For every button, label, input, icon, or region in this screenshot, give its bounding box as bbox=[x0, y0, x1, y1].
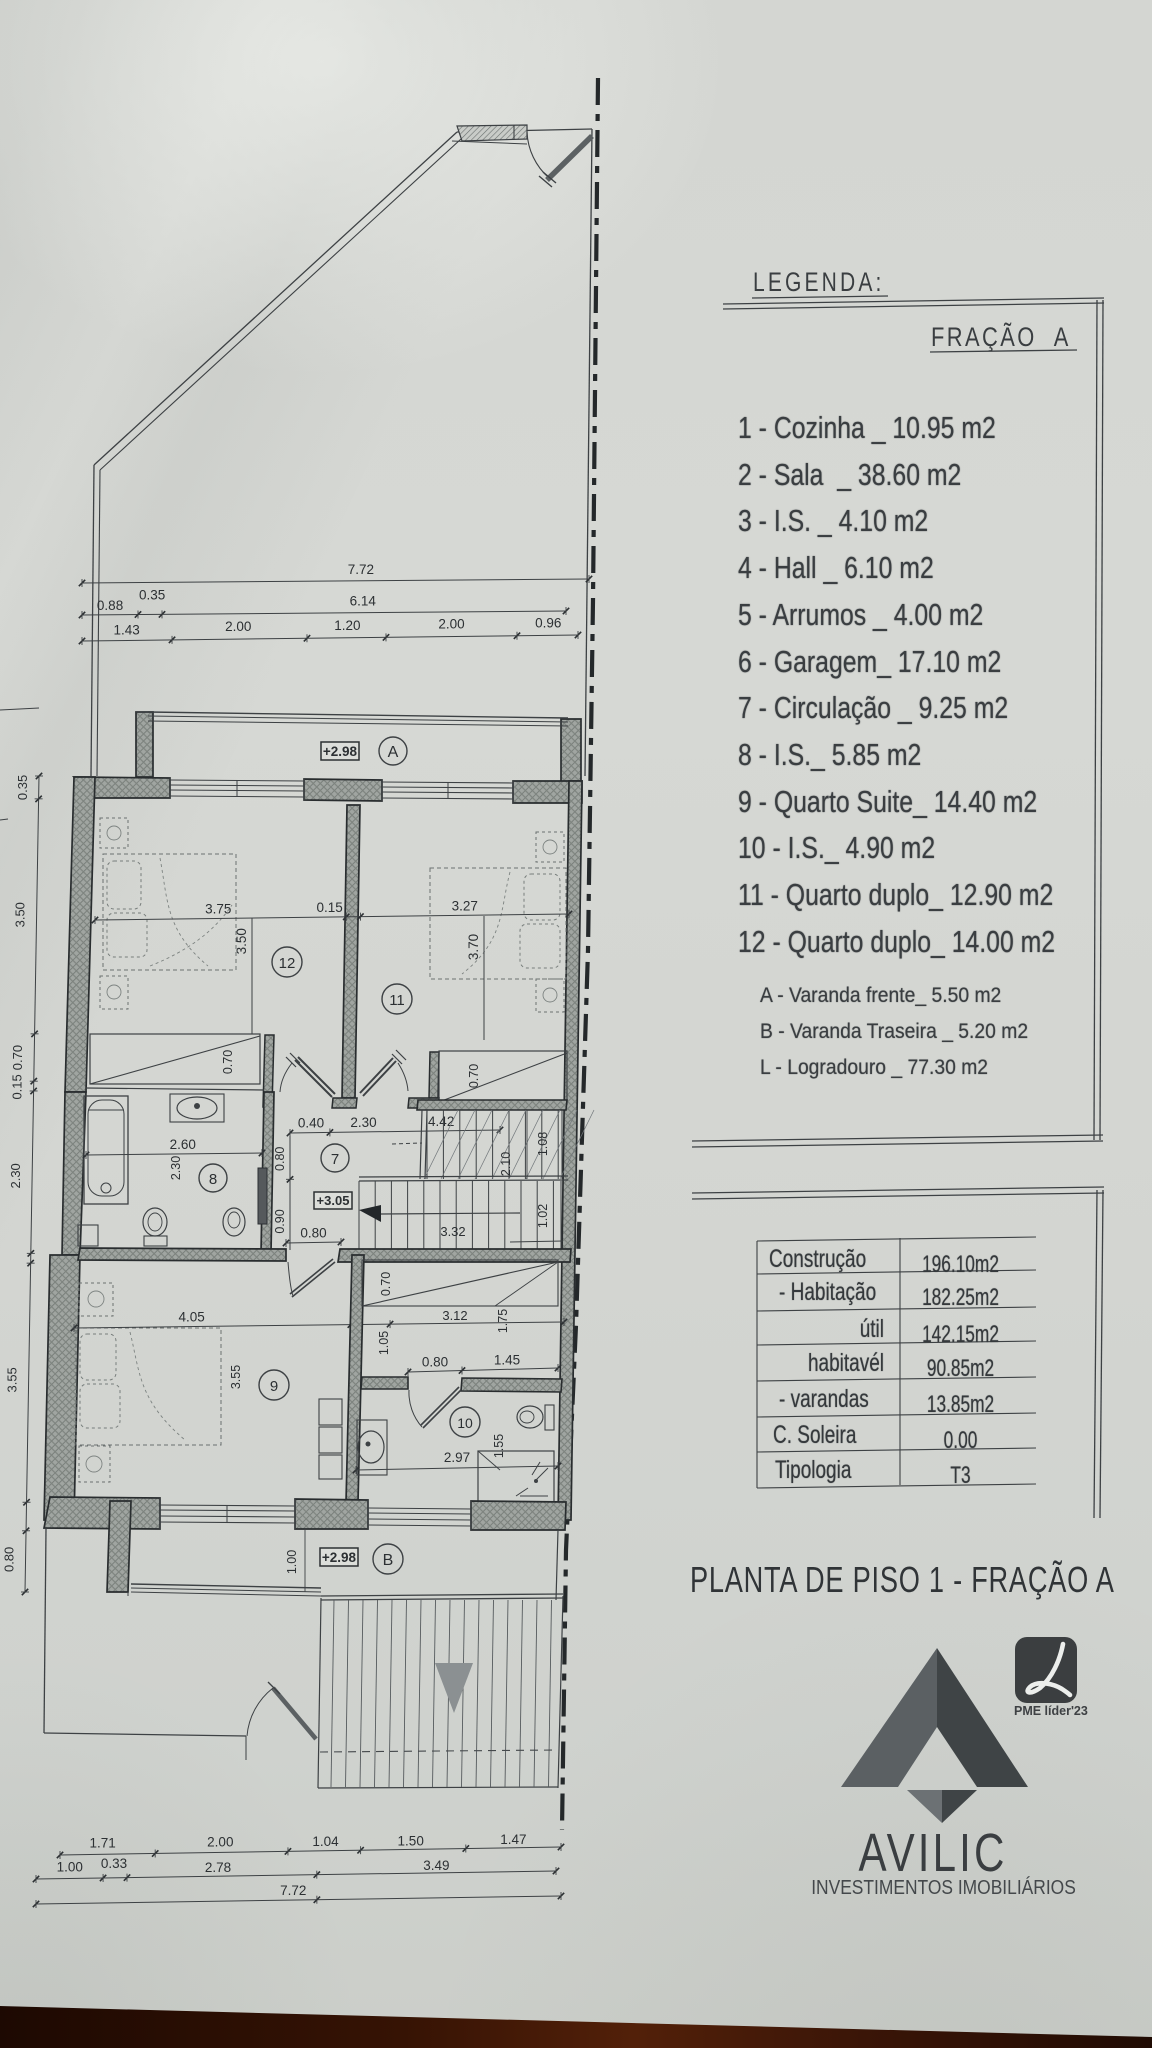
svg-text:0.15: 0.15 bbox=[10, 1074, 25, 1099]
svg-text:+3.05: +3.05 bbox=[317, 1193, 350, 1208]
svg-text:0.80: 0.80 bbox=[273, 1147, 287, 1171]
svg-text:1.50: 1.50 bbox=[398, 1833, 424, 1848]
svg-text:0.70: 0.70 bbox=[221, 1050, 235, 1074]
svg-text:2.00: 2.00 bbox=[225, 619, 251, 634]
svg-text:1.71: 1.71 bbox=[89, 1835, 115, 1850]
svg-text:A: A bbox=[388, 744, 399, 761]
svg-text:+2.98: +2.98 bbox=[322, 1550, 357, 1565]
svg-text:0.70: 0.70 bbox=[467, 1064, 481, 1088]
svg-text:3.12: 3.12 bbox=[442, 1308, 467, 1323]
svg-text:B: B bbox=[383, 1552, 394, 1569]
svg-text:3.55: 3.55 bbox=[5, 1367, 20, 1392]
svg-text:3.32: 3.32 bbox=[440, 1224, 465, 1239]
svg-text:1.45: 1.45 bbox=[494, 1352, 520, 1367]
svg-text:1.20: 1.20 bbox=[334, 618, 360, 633]
svg-text:1.05: 1.05 bbox=[377, 1331, 391, 1355]
svg-text:2.10: 2.10 bbox=[499, 1152, 513, 1176]
svg-text:+2.98: +2.98 bbox=[323, 744, 358, 759]
svg-text:3.49: 3.49 bbox=[423, 1858, 449, 1873]
svg-text:0.80: 0.80 bbox=[300, 1226, 326, 1241]
svg-text:2.60: 2.60 bbox=[170, 1137, 196, 1152]
svg-text:2.30: 2.30 bbox=[8, 1163, 23, 1188]
svg-text:2.30: 2.30 bbox=[350, 1115, 376, 1130]
svg-text:1.00: 1.00 bbox=[57, 1859, 83, 1874]
svg-text:0.70: 0.70 bbox=[379, 1272, 393, 1296]
svg-text:2.00: 2.00 bbox=[207, 1834, 233, 1849]
svg-text:2.97: 2.97 bbox=[444, 1450, 470, 1465]
svg-text:1.55: 1.55 bbox=[492, 1434, 506, 1458]
svg-text:4.42: 4.42 bbox=[428, 1114, 454, 1129]
svg-text:11: 11 bbox=[389, 992, 405, 1009]
svg-text:4.05: 4.05 bbox=[178, 1310, 204, 1325]
svg-text:10: 10 bbox=[457, 1415, 473, 1431]
svg-text:7.72: 7.72 bbox=[348, 562, 374, 577]
svg-text:3.50: 3.50 bbox=[234, 928, 249, 954]
svg-text:0.80: 0.80 bbox=[2, 1547, 17, 1572]
svg-text:1.00: 1.00 bbox=[285, 1550, 299, 1574]
svg-text:0.88: 0.88 bbox=[97, 598, 123, 613]
svg-text:0.90: 0.90 bbox=[273, 1209, 287, 1233]
svg-text:12: 12 bbox=[279, 955, 296, 972]
svg-text:0.96: 0.96 bbox=[535, 615, 561, 630]
svg-text:6.14: 6.14 bbox=[350, 594, 377, 609]
svg-text:7.72: 7.72 bbox=[280, 1883, 306, 1898]
svg-text:3.70: 3.70 bbox=[466, 934, 481, 960]
svg-text:0.15: 0.15 bbox=[316, 900, 342, 915]
svg-text:3.27: 3.27 bbox=[452, 898, 478, 913]
svg-text:1.04: 1.04 bbox=[312, 1834, 339, 1849]
svg-text:1.75: 1.75 bbox=[496, 1309, 510, 1333]
svg-text:1.43: 1.43 bbox=[113, 622, 139, 637]
svg-text:0.80: 0.80 bbox=[422, 1354, 448, 1369]
svg-text:1.47: 1.47 bbox=[500, 1832, 526, 1847]
svg-text:0.40: 0.40 bbox=[298, 1116, 324, 1131]
svg-text:3.50: 3.50 bbox=[13, 902, 28, 927]
svg-text:9: 9 bbox=[270, 1378, 278, 1395]
svg-text:1.08: 1.08 bbox=[536, 1132, 550, 1156]
svg-text:2.00: 2.00 bbox=[438, 617, 464, 632]
svg-text:0.35: 0.35 bbox=[15, 775, 30, 800]
svg-text:3.75: 3.75 bbox=[205, 901, 231, 916]
svg-text:0.70: 0.70 bbox=[10, 1045, 25, 1070]
svg-text:7: 7 bbox=[331, 1151, 339, 1168]
svg-text:2.30: 2.30 bbox=[169, 1156, 183, 1180]
svg-text:8: 8 bbox=[209, 1171, 217, 1188]
svg-text:0.35: 0.35 bbox=[139, 587, 165, 602]
svg-text:3.55: 3.55 bbox=[229, 1365, 243, 1389]
svg-text:2.78: 2.78 bbox=[205, 1860, 231, 1875]
svg-text:0.33: 0.33 bbox=[101, 1856, 127, 1871]
svg-text:1.02: 1.02 bbox=[536, 1204, 550, 1228]
